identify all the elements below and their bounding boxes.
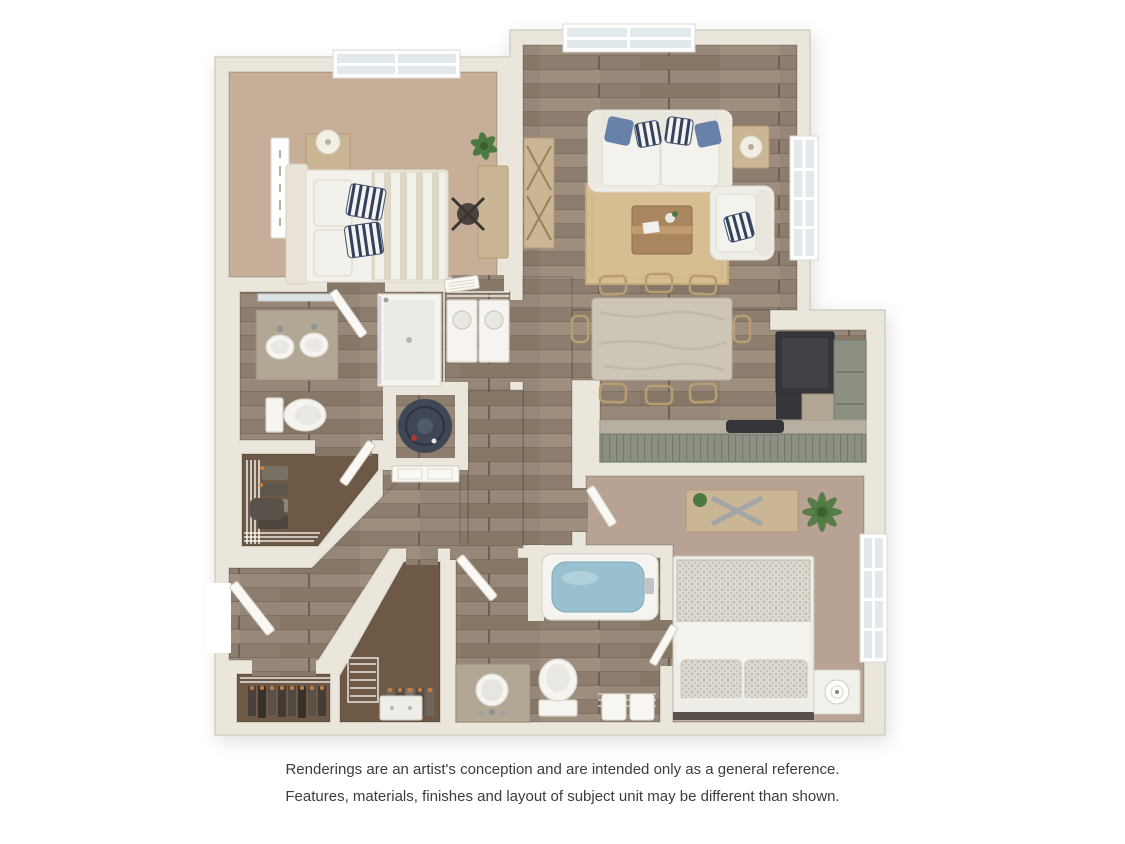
cooktop: [726, 420, 784, 433]
doorway: [406, 545, 438, 565]
pillow: [314, 180, 352, 226]
accent-pillow: [694, 120, 722, 148]
closet-door: [392, 466, 459, 482]
living-room-side-window: [790, 136, 818, 260]
toilet: [539, 659, 577, 716]
palm-plant: [802, 492, 842, 532]
accent-pillow: [604, 116, 635, 147]
single-vanity: [456, 664, 530, 722]
armchair: [710, 186, 774, 260]
valve: [411, 435, 417, 441]
washer-door: [453, 311, 471, 329]
water-heater-closet: [392, 395, 459, 482]
pillow: [681, 698, 810, 714]
dresser: [380, 696, 422, 720]
dresser: [686, 490, 798, 532]
dryer: [479, 300, 509, 362]
potted-plant: [693, 493, 707, 507]
accent-pillow: [664, 116, 693, 145]
entry-opening: [205, 583, 231, 653]
bed-fold: [677, 622, 810, 662]
pillow: [681, 660, 741, 700]
towels: [630, 694, 654, 720]
book: [642, 221, 659, 234]
media-console: [524, 138, 554, 248]
desk: [478, 166, 508, 258]
disclaimer-line-1: Renderings are an artist's conception an…: [0, 756, 1125, 783]
living-room-window: [563, 24, 695, 52]
bed-headboard: [286, 164, 308, 284]
dining-table: [592, 298, 732, 380]
mirror: [258, 294, 336, 301]
bed: [673, 556, 814, 720]
disclaimer-line-2: Features, materials, finishes and layout…: [0, 783, 1125, 810]
refrigerator-top: [782, 338, 828, 388]
disclaimer: Renderings are an artist's conception an…: [0, 756, 1125, 810]
hallway-floor: [468, 390, 523, 548]
floor-plan-page: Renderings are an artist's conception an…: [0, 0, 1125, 844]
wire-shelving: [348, 658, 378, 702]
accent-pillow: [345, 183, 386, 221]
shower-head: [384, 298, 389, 303]
double-vanity: [256, 310, 338, 380]
dryer-door: [485, 311, 503, 329]
bedroom-1-window: [333, 50, 460, 78]
drain: [406, 337, 412, 343]
lamp-finial: [748, 144, 754, 150]
bar-counter: [600, 420, 866, 462]
lamp-finial: [325, 139, 331, 145]
toilet: [266, 398, 326, 432]
shower: [378, 294, 441, 386]
tub-faucet: [644, 578, 654, 594]
doorway: [570, 488, 588, 532]
hallway-floor: [523, 277, 572, 545]
faucet: [277, 326, 283, 332]
bathtub: [542, 554, 658, 620]
bed-duvet: [677, 560, 810, 622]
washer: [447, 300, 477, 362]
floor-plan-rendering: [0, 0, 1125, 844]
nightstand: [814, 670, 860, 714]
bed-duvet: [372, 172, 446, 280]
accent-pillow: [344, 222, 384, 259]
faucet: [311, 324, 317, 330]
duffel-bag: [250, 498, 284, 520]
accent-pillow: [634, 120, 662, 148]
coffee-table: [632, 206, 692, 254]
pillow: [745, 660, 807, 700]
towels: [602, 694, 626, 720]
sofa: [588, 110, 732, 192]
bed-headboard: [673, 712, 814, 720]
doorway: [252, 656, 316, 676]
bedroom-2-window: [860, 534, 887, 662]
faucet: [489, 709, 495, 715]
